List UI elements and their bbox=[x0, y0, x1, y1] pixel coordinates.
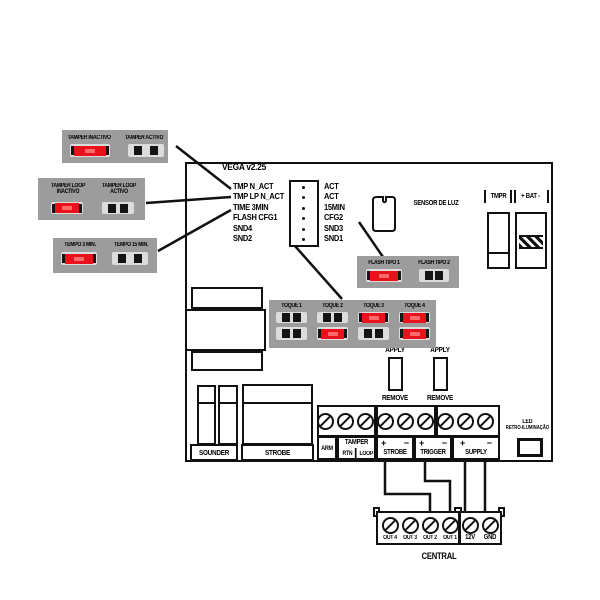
strobe-label-box: STROBE bbox=[241, 444, 314, 461]
tick-mark bbox=[514, 190, 516, 203]
callout-line-tamper-loop bbox=[146, 197, 231, 203]
pin-label: SND3 bbox=[324, 223, 359, 233]
pin-label: ACT bbox=[324, 191, 359, 201]
flash-tipo2-label: FLASH TIPO 2 bbox=[414, 260, 453, 266]
supply-minus: − bbox=[487, 438, 492, 448]
transformer-body bbox=[185, 309, 266, 351]
fuse-holder-trigger bbox=[433, 357, 448, 391]
pin-label: SND4 bbox=[233, 223, 284, 233]
sounder-connector-2 bbox=[218, 385, 238, 445]
toque2-jumper-top bbox=[317, 312, 348, 323]
connector-divider bbox=[220, 402, 236, 404]
pin-label: ACT bbox=[324, 181, 359, 191]
callout-line-tempo bbox=[158, 210, 231, 251]
supply-terminal-label-box: + − SUPPLY bbox=[452, 436, 500, 460]
screw-out2 bbox=[422, 517, 439, 534]
toque1-jumper-top bbox=[276, 312, 307, 323]
remove-label-2: REMOVE bbox=[426, 394, 455, 402]
pin-label: SND1 bbox=[324, 233, 359, 243]
strobe-label: STROBE bbox=[248, 449, 307, 457]
out4-label: OUT 4 bbox=[382, 535, 399, 541]
flash-tipo1-label: FLASH TIPO 1 bbox=[363, 260, 406, 266]
tempo-15min-jumper bbox=[112, 252, 148, 265]
arm-label: ARM bbox=[315, 446, 339, 453]
gnd-label: GND bbox=[482, 534, 499, 541]
tmpr-label: TMPR bbox=[489, 193, 509, 200]
pin-label: 15MIN bbox=[324, 202, 359, 212]
arm-label-box: ARM bbox=[317, 436, 337, 460]
flash-tipo2-jumper bbox=[419, 269, 449, 282]
tamper-label: TAMPER bbox=[342, 439, 372, 446]
tamper-inactivo-jumper bbox=[70, 144, 110, 157]
light-sensor-icon bbox=[373, 197, 395, 231]
pin-label: CFG2 bbox=[324, 212, 359, 222]
screw-supply-plus bbox=[457, 413, 474, 430]
flash-tipo1-jumper bbox=[366, 269, 402, 282]
screw-trigger-plus bbox=[417, 413, 434, 430]
rtn-label: RTN bbox=[340, 448, 356, 458]
toque-jumper-bank: TOQUE 1 TOQUE 2 TOQUE 3 TOQUE 4 bbox=[269, 300, 436, 348]
tamper-loop-activo-jumper bbox=[102, 202, 134, 214]
supply-plus: + bbox=[460, 438, 465, 448]
transformer-bottom bbox=[191, 351, 263, 371]
toque2-jumper-bottom bbox=[317, 327, 348, 340]
screw-trigger-minus bbox=[437, 413, 454, 430]
tick-mark bbox=[547, 190, 549, 203]
pin-label: TIME 3MIN bbox=[233, 202, 284, 212]
screw-out4 bbox=[382, 517, 399, 534]
led-label-line2: RETRO-ILUMINAÇÃO bbox=[505, 425, 550, 432]
connector-divider bbox=[199, 402, 214, 404]
battery-hatch-band bbox=[519, 235, 543, 249]
out3-label: OUT 3 bbox=[402, 535, 419, 541]
led-component bbox=[517, 438, 543, 457]
pin-label: FLASH CFG1 bbox=[233, 212, 284, 222]
tempo-15min-label: TEMPO 15 MIN. bbox=[110, 242, 153, 248]
screw-gnd bbox=[482, 517, 499, 534]
trigger-plus: + bbox=[419, 438, 424, 448]
12v-label: 12V bbox=[462, 534, 479, 541]
tamper-loop-activo-label: TAMPER LOOP ACTIVO bbox=[97, 183, 141, 196]
toque3-label: TOQUE 3 bbox=[357, 303, 390, 309]
sounder-connector-1 bbox=[197, 385, 216, 445]
tempo-3min-jumper bbox=[61, 252, 97, 265]
connector-divider bbox=[244, 402, 311, 404]
screw-out3 bbox=[402, 517, 419, 534]
tick-mark bbox=[484, 190, 486, 203]
screw-strobe-plus bbox=[377, 413, 394, 430]
pin-labels-right: ACT ACT 15MIN CFG2 SND3 SND1 bbox=[324, 181, 364, 243]
sounder-label: SOUNDER bbox=[195, 449, 232, 457]
tamper-activo-jumper bbox=[128, 144, 164, 157]
strobe-plus: + bbox=[381, 438, 386, 448]
supply-terminal-label: SUPPLY bbox=[457, 449, 494, 456]
pin-header bbox=[289, 180, 319, 247]
tamper-activo-label: TAMPER ACTIVO bbox=[124, 135, 165, 141]
tamper-loop-inactivo-jumper bbox=[51, 202, 83, 214]
tempo-3min-label: TEMPO 3 MIN. bbox=[59, 242, 102, 248]
connector-divider bbox=[489, 252, 508, 254]
tick-mark bbox=[510, 190, 512, 203]
out2-label: OUT 2 bbox=[422, 535, 439, 541]
callout-box-flash: FLASH TIPO 1 FLASH TIPO 2 bbox=[357, 256, 459, 288]
screw-supply-minus bbox=[477, 413, 494, 430]
wire-strobe-plus-to-out2 bbox=[385, 460, 430, 512]
pin-labels-left: TMP N_ACT TMP LP N_ACT TIME 3MIN FLASH C… bbox=[233, 181, 291, 243]
battery-connector bbox=[515, 212, 547, 269]
diagram-canvas: VEGA v2.25 TMP N_ACT TMP LP N_ACT TIME 3… bbox=[0, 0, 600, 600]
screw-rtn bbox=[337, 413, 354, 430]
pin-dot bbox=[302, 228, 305, 231]
screw-arm bbox=[317, 413, 334, 430]
sounder-label-box: SOUNDER bbox=[190, 444, 238, 461]
out1-label: OUT 1 bbox=[442, 535, 459, 541]
tamper-loop-inactivo-label: TAMPER LOOP INACTIVO bbox=[46, 183, 90, 196]
strobe-minus: − bbox=[404, 438, 409, 448]
screw-12v bbox=[462, 517, 479, 534]
remove-label-1: REMOVE bbox=[381, 394, 410, 402]
toque1-jumper-bottom bbox=[276, 327, 307, 340]
screw-loop bbox=[357, 413, 374, 430]
callout-box-tamper-loop: TAMPER LOOP INACTIVO TAMPER LOOP ACTIVO bbox=[38, 178, 145, 220]
trigger-minus: − bbox=[442, 438, 447, 448]
transformer-top bbox=[191, 287, 263, 309]
callout-box-tamper: TAMPER INACTIVO TAMPER ACTIVO bbox=[62, 130, 168, 163]
bat-label: + BAT - bbox=[517, 193, 543, 200]
strobe-connector bbox=[242, 384, 313, 445]
trigger-terminal-label: TRIGGER bbox=[419, 449, 448, 456]
toque4-label: TOQUE 4 bbox=[398, 303, 431, 309]
strobe-terminal-label: STROBE bbox=[381, 449, 410, 456]
screw-out1 bbox=[442, 517, 459, 534]
pin-label: SND2 bbox=[233, 233, 284, 243]
loop-label: LOOP bbox=[359, 448, 373, 458]
screw-strobe-minus bbox=[397, 413, 414, 430]
sensor-label: SENSOR DE LUZ bbox=[410, 200, 463, 207]
toque4-jumper-top bbox=[399, 312, 430, 323]
callout-box-tempo: TEMPO 3 MIN. TEMPO 15 MIN. bbox=[53, 238, 157, 273]
board-title: VEGA v2.25 bbox=[222, 163, 266, 173]
tmpr-connector bbox=[487, 212, 510, 269]
toque4-jumper-bottom bbox=[399, 327, 430, 340]
pin-dot bbox=[302, 238, 305, 241]
trigger-terminal-label-box: + − TRIGGER bbox=[414, 436, 452, 460]
pin-label: TMP N_ACT bbox=[233, 181, 284, 191]
tamper-inactivo-label: TAMPER INACTIVO bbox=[68, 135, 109, 141]
central-title: CENTRAL bbox=[405, 552, 473, 561]
toque3-jumper-top bbox=[358, 312, 389, 323]
pin-dot bbox=[302, 186, 305, 189]
led-label-group: LED RETRO-ILUMINAÇÃO bbox=[501, 419, 554, 432]
strobe-terminal-label-box: + − STROBE bbox=[376, 436, 414, 460]
toque1-label: TOQUE 1 bbox=[275, 303, 308, 309]
callout-line-toque bbox=[295, 246, 342, 299]
toque3-jumper-bottom bbox=[358, 327, 389, 340]
toque2-label: TOQUE 2 bbox=[316, 303, 349, 309]
fuse-holder-strobe bbox=[388, 357, 403, 391]
pin-label: TMP LP N_ACT bbox=[233, 191, 284, 201]
tamper-label-box: TAMPER RTN LOOP bbox=[337, 436, 376, 460]
pin-dot bbox=[302, 207, 305, 210]
